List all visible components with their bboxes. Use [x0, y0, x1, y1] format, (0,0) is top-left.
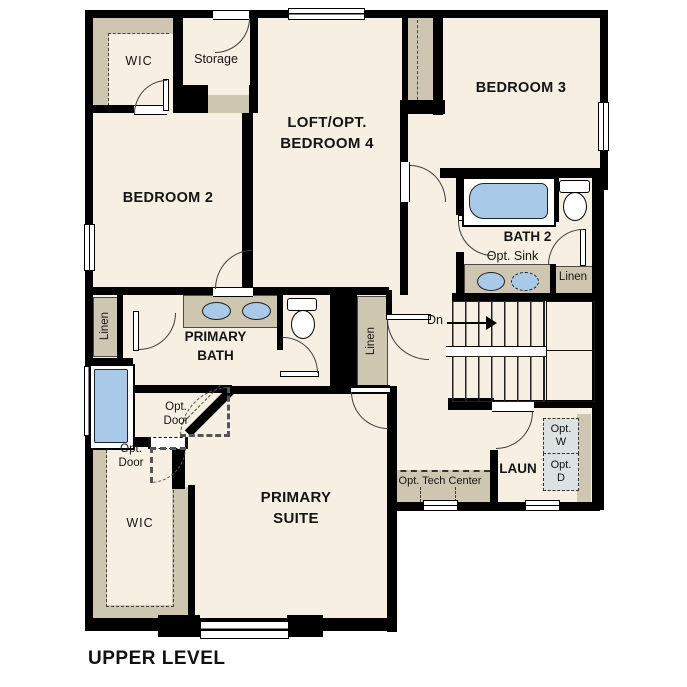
- primary-suite-label-line1: PRIMARY: [240, 487, 352, 508]
- bedroom2-label: BEDROOM 2: [103, 190, 233, 206]
- wall-wic-top-bottom: [85, 105, 135, 113]
- primary-bath-label: PRIMARY BATH: [158, 328, 273, 366]
- bath2-toilet-bowl: [563, 192, 587, 221]
- wic-bottom-label: WIC: [119, 516, 161, 530]
- bath2-label: BATH 2: [480, 228, 575, 247]
- wall-bath2-bottom: [452, 293, 604, 301]
- wic-bottom-shelf-right: [172, 487, 188, 607]
- storage-label: Storage: [182, 52, 250, 66]
- wall-bottom-bump-left: [158, 615, 200, 637]
- window-laundry-bottom: [525, 500, 560, 511]
- opt-d-label-line2: D: [557, 472, 565, 485]
- loft-label-line2: BEDROOM 4: [252, 133, 402, 154]
- left-linen-label: Linen: [93, 298, 117, 354]
- bath2-optional-sink: [511, 272, 539, 291]
- opt-door-upper-line1: Opt.: [156, 400, 196, 414]
- wall-loft-right-chunk: [400, 100, 445, 114]
- opt-door-lower-label: Opt. Door: [110, 442, 152, 471]
- window-tech-bottom: [423, 500, 458, 511]
- loft-label-line1: LOFT/OPT.: [252, 112, 402, 133]
- center-linen-label: Linen: [357, 296, 386, 385]
- opt-w-label-line2: W: [556, 436, 566, 449]
- laundry-label: LAUN: [490, 460, 546, 479]
- primary-bath-label-line2: BATH: [158, 347, 273, 366]
- laundry-side-shelf: [577, 414, 591, 502]
- bathtub: [469, 183, 548, 219]
- opt-door-lower-line2: Door: [110, 456, 152, 470]
- wall-left-linen-right: [117, 293, 123, 359]
- stairs-landing-lower: [546, 350, 595, 402]
- tech-center-label: Opt. Tech Center: [391, 475, 489, 487]
- bedroom3-door-opening: [400, 162, 410, 202]
- tech-center-divider-1: [420, 487, 422, 502]
- stairs-direction-arrow: [486, 316, 497, 330]
- bath2-sink: [477, 272, 505, 291]
- loft-label: LOFT/OPT. BEDROOM 4: [252, 112, 402, 154]
- wall-center-block: [330, 290, 357, 390]
- window-loft-top: [288, 8, 365, 20]
- primary-toilet-bowl: [291, 310, 315, 339]
- wall-block-under-storage-right: [249, 85, 258, 113]
- wall-loft-right-lower: [400, 200, 408, 295]
- primary-bath-sink-left: [202, 302, 231, 320]
- window-suite-bottom: [200, 621, 289, 639]
- optional-dryer: Opt. D: [543, 453, 579, 491]
- window-bedroom2-left: [84, 224, 95, 271]
- page-title: UPPER LEVEL: [88, 648, 225, 670]
- bedroom3-label: BEDROOM 3: [451, 80, 591, 96]
- bath2-linen-label: Linen: [554, 270, 592, 284]
- wall-wic-suite-divider: [188, 485, 195, 618]
- wall-primary-bath-top: [253, 287, 389, 295]
- wic-top-label: WIC: [118, 54, 160, 68]
- wall-loft-right-thin: [402, 10, 408, 105]
- wall-bedroom2-bottom: [85, 287, 213, 295]
- wall-bottom-bump-right: [287, 615, 323, 637]
- wall-suite-right: [387, 425, 397, 632]
- floor-plan: Opt. W Opt. D WIC Storage BEDROOM 2 LOFT…: [0, 0, 687, 687]
- stairs-upper-run: [452, 301, 545, 348]
- wall-right-bedroom3: [600, 10, 608, 190]
- wic-bottom-shelf-left: [93, 447, 107, 607]
- wall-suite-top: [230, 386, 354, 394]
- opt-door-upper-label: Opt. Door: [156, 400, 196, 429]
- stairs-landing-upper: [546, 301, 595, 351]
- wall-left: [85, 10, 93, 622]
- primary-bath-label-line1: PRIMARY: [158, 328, 273, 347]
- opt-door-lower-line1: Opt.: [110, 442, 152, 456]
- opt-sink-label: Opt. Sink: [465, 249, 560, 263]
- primary-bath-sink-right: [242, 302, 271, 320]
- opt-d-label-line1: Opt.: [551, 459, 572, 472]
- primary-suite-label: PRIMARY SUITE: [240, 487, 352, 529]
- window-bedroom3-right: [598, 102, 609, 151]
- wall-toilet-compartment: [277, 295, 283, 350]
- storage-shelf: [207, 95, 249, 113]
- primary-shower: [94, 369, 128, 443]
- bedroom3-closet-rod-line: [417, 20, 419, 110]
- optional-washer: Opt. W: [543, 418, 579, 454]
- stairs-lower-run: [452, 356, 545, 402]
- opt-w-label-line1: Opt.: [551, 423, 572, 436]
- center-linen-label-text: Linen: [365, 326, 377, 354]
- stairs-dn-label: Dn: [424, 313, 446, 327]
- primary-suite-label-line2: SUITE: [240, 508, 352, 529]
- opt-door-upper-line2: Door: [156, 414, 196, 428]
- left-linen-label-text: Linen: [99, 312, 111, 340]
- wic-top-shelf-left: [93, 18, 109, 108]
- stairs-direction-line: [447, 322, 487, 324]
- wall-block-under-storage-left: [173, 85, 208, 113]
- bedroom3-closet-shelf: [407, 18, 433, 113]
